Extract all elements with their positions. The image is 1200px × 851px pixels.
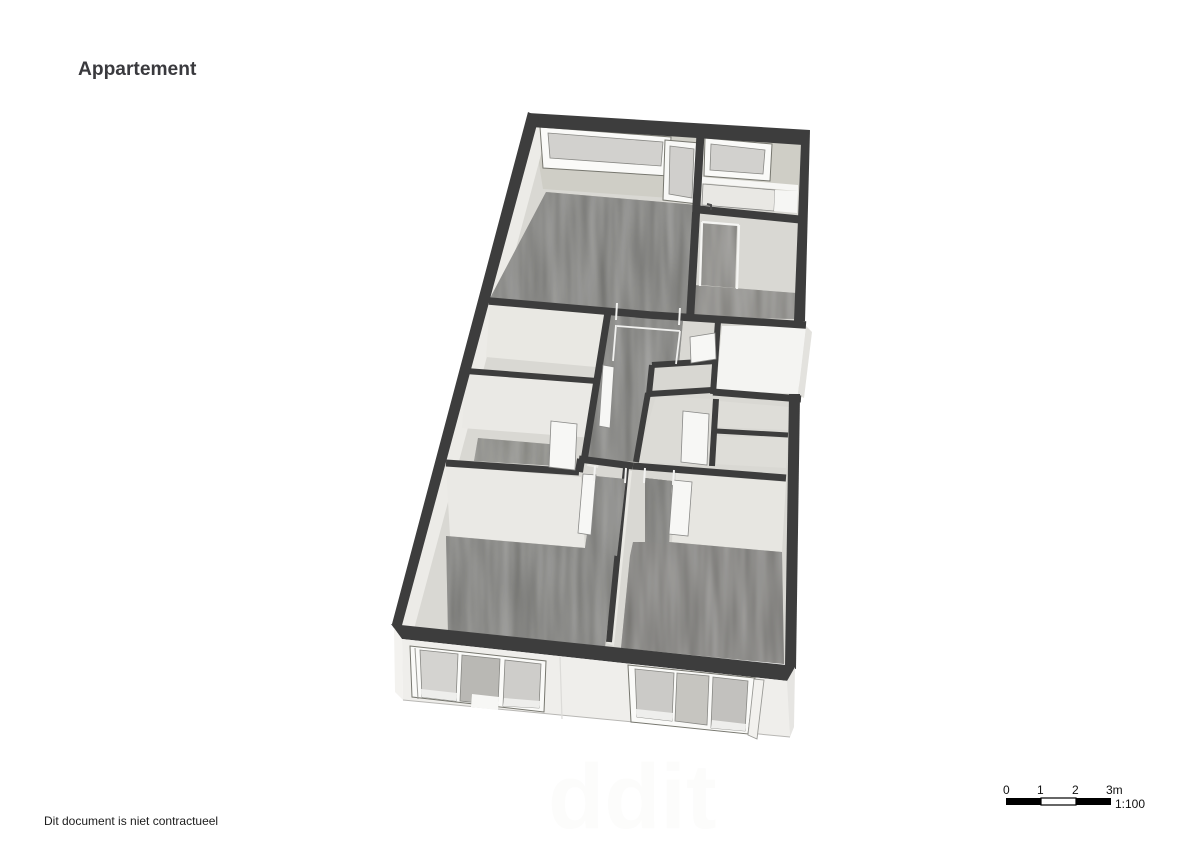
svg-text:2: 2 (1072, 783, 1079, 797)
svg-text:3m: 3m (1106, 783, 1123, 797)
svg-text:1:100: 1:100 (1115, 797, 1145, 811)
svg-text:Dit document is niet contractu: Dit document is niet contractueel (44, 814, 218, 828)
svg-text:0: 0 (1003, 783, 1010, 797)
svg-text:1: 1 (1037, 783, 1044, 797)
svg-text:Appartement: Appartement (78, 59, 197, 80)
svg-text:ddit: ddit (548, 746, 717, 848)
